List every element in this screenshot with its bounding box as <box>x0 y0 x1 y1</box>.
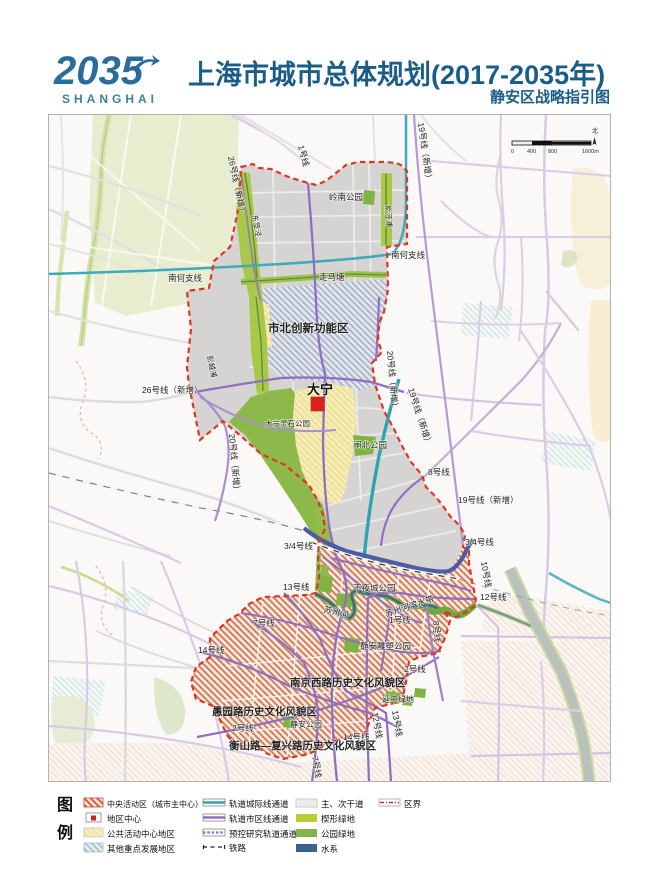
svg-text:俞泾浦: 俞泾浦 <box>383 204 395 228</box>
svg-text:2号线: 2号线 <box>404 664 426 674</box>
svg-text:轨道城际线通道: 轨道城际线通道 <box>229 799 289 809</box>
svg-text:0: 0 <box>511 149 514 155</box>
svg-text:19号线（新增）: 19号线（新增） <box>458 495 518 505</box>
svg-text:7号线: 7号线 <box>253 618 275 628</box>
svg-text:地区中心: 地区中心 <box>107 814 142 824</box>
svg-text:区界: 区界 <box>404 799 422 809</box>
svg-text:南何支线: 南何支线 <box>168 273 203 283</box>
svg-text:主、次干道: 主、次干道 <box>321 799 364 809</box>
svg-text:静安公园: 静安公园 <box>290 719 322 729</box>
svg-text:3/4号线: 3/4号线 <box>284 541 313 551</box>
svg-text:楔形绿地: 楔形绿地 <box>321 814 356 824</box>
svg-text:南京西路历史文化风貌区: 南京西路历史文化风貌区 <box>290 676 406 689</box>
svg-text:2号线: 2号线 <box>232 723 254 733</box>
svg-text:大宁灵石公园: 大宁灵石公园 <box>265 418 310 428</box>
svg-text:预控研究轨道通道: 预控研究轨道通道 <box>229 829 298 839</box>
svg-text:市北创新功能区: 市北创新功能区 <box>268 321 349 335</box>
svg-text:1号线: 1号线 <box>389 615 411 625</box>
svg-text:例: 例 <box>57 823 73 842</box>
svg-text:800: 800 <box>548 149 557 155</box>
svg-text:愚园路历史文化风貌区: 愚园路历史文化风貌区 <box>212 705 317 718</box>
svg-text:400: 400 <box>527 149 536 155</box>
svg-text:8号线: 8号线 <box>428 467 450 477</box>
svg-text:水系: 水系 <box>321 844 338 854</box>
svg-text:轨道市区线通道: 轨道市区线通道 <box>229 814 289 824</box>
svg-text:大宁: 大宁 <box>307 382 333 397</box>
svg-text:北: 北 <box>592 127 598 135</box>
svg-text:南何支线: 南何支线 <box>391 250 426 260</box>
svg-text:公共活动中心地区: 公共活动中心地区 <box>107 829 176 839</box>
svg-text:衡山路—复兴路历史文化风貌区: 衡山路—复兴路历史文化风貌区 <box>229 739 376 752</box>
svg-text:12号线: 12号线 <box>480 592 507 602</box>
svg-text:3/4号线: 3/4号线 <box>465 537 494 547</box>
svg-text:14号线: 14号线 <box>198 645 225 655</box>
svg-text:其他重点发展地区: 其他重点发展地区 <box>107 844 176 854</box>
svg-text:公园绿地: 公园绿地 <box>321 829 356 839</box>
svg-text:不夜城公园: 不夜城公园 <box>353 583 396 593</box>
svg-text:13号线: 13号线 <box>283 582 310 592</box>
svg-text:铁路: 铁路 <box>229 843 247 853</box>
svg-text:闸北公园: 闸北公园 <box>353 440 387 450</box>
svg-text:8号线: 8号线 <box>431 620 443 643</box>
svg-text:静安雕塑公园: 静安雕塑公园 <box>360 641 411 651</box>
svg-text:26号线（新增）: 26号线（新增） <box>142 385 202 395</box>
svg-text:岭南公园: 岭南公园 <box>329 192 363 202</box>
svg-text:图: 图 <box>57 796 73 814</box>
svg-text:走马塘: 走马塘 <box>319 272 345 282</box>
svg-text:延中绿地: 延中绿地 <box>382 694 414 704</box>
svg-text:1600m: 1600m <box>582 149 599 155</box>
svg-text:中央活动区（城市主中心）: 中央活动区（城市主中心） <box>107 799 203 809</box>
